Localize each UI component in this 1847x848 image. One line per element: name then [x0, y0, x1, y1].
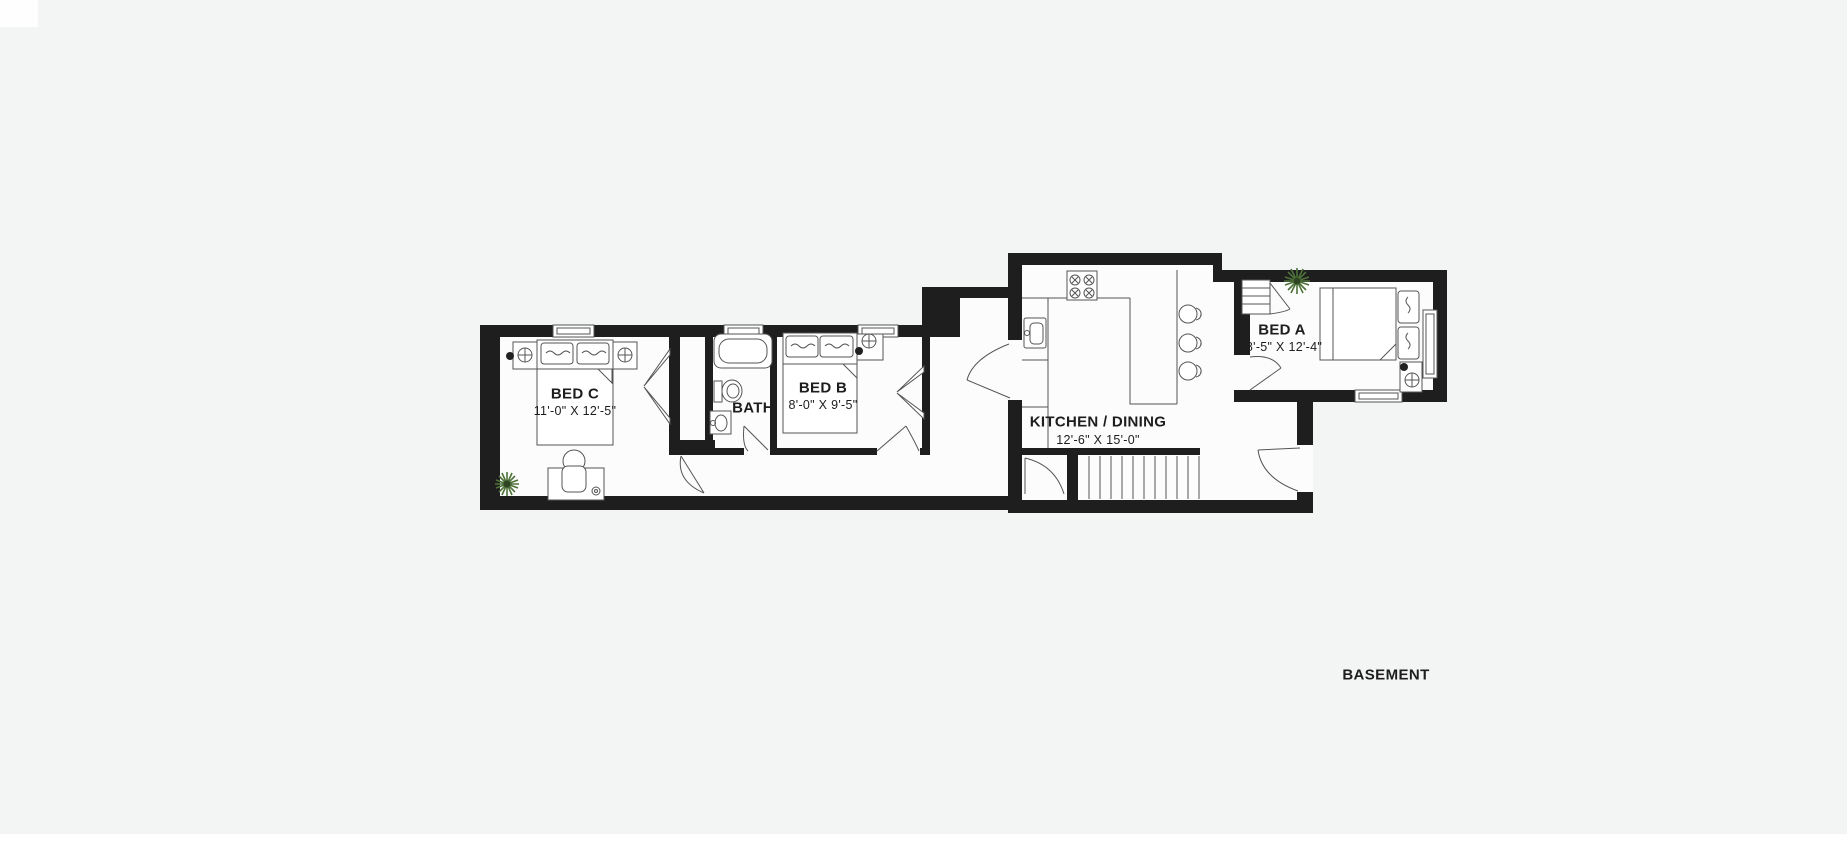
dot-marker	[1400, 363, 1408, 371]
room-label-bed-a: BED A	[1258, 322, 1306, 339]
dot-marker	[506, 352, 514, 360]
floorplan-page: BED C 11'-0" X 12'-5" BATH BED B 8'-0" X…	[0, 0, 1847, 848]
room-label-bed-c: BED C	[551, 386, 599, 403]
lamp-icon	[862, 334, 876, 348]
room-label-bed-b: BED B	[799, 380, 847, 397]
bathtub-icon	[714, 334, 772, 368]
room-dims-bed-b: 8'-0" X 9'-5"	[789, 398, 858, 412]
room-dims-bed-a: 8'-5" X 12'-4"	[1246, 340, 1322, 354]
lamp-icon	[518, 348, 532, 362]
window	[1355, 390, 1402, 402]
floorplan-drawing	[0, 0, 1847, 848]
floor-title: BASEMENT	[1342, 667, 1429, 684]
stove-icon	[1067, 271, 1097, 300]
room-dims-kitchen: 12'-6" X 15'-0"	[1056, 433, 1139, 447]
nightstand	[857, 334, 883, 360]
lamp-icon	[1405, 373, 1419, 387]
room-floors	[500, 265, 1433, 500]
bottom-fade	[0, 834, 1847, 848]
window	[1423, 310, 1437, 378]
kitchen-sink-icon	[1024, 318, 1046, 348]
room-label-bath: BATH	[732, 400, 774, 417]
window	[553, 325, 594, 337]
dot-marker	[855, 347, 863, 355]
sink-icon	[710, 411, 731, 434]
room-label-kitchen: KITCHEN / DINING	[1030, 414, 1166, 431]
closet-icon	[1242, 280, 1270, 314]
lamp-icon	[618, 348, 632, 362]
room-dims-bed-c: 11'-0" X 12'-5"	[534, 404, 617, 418]
